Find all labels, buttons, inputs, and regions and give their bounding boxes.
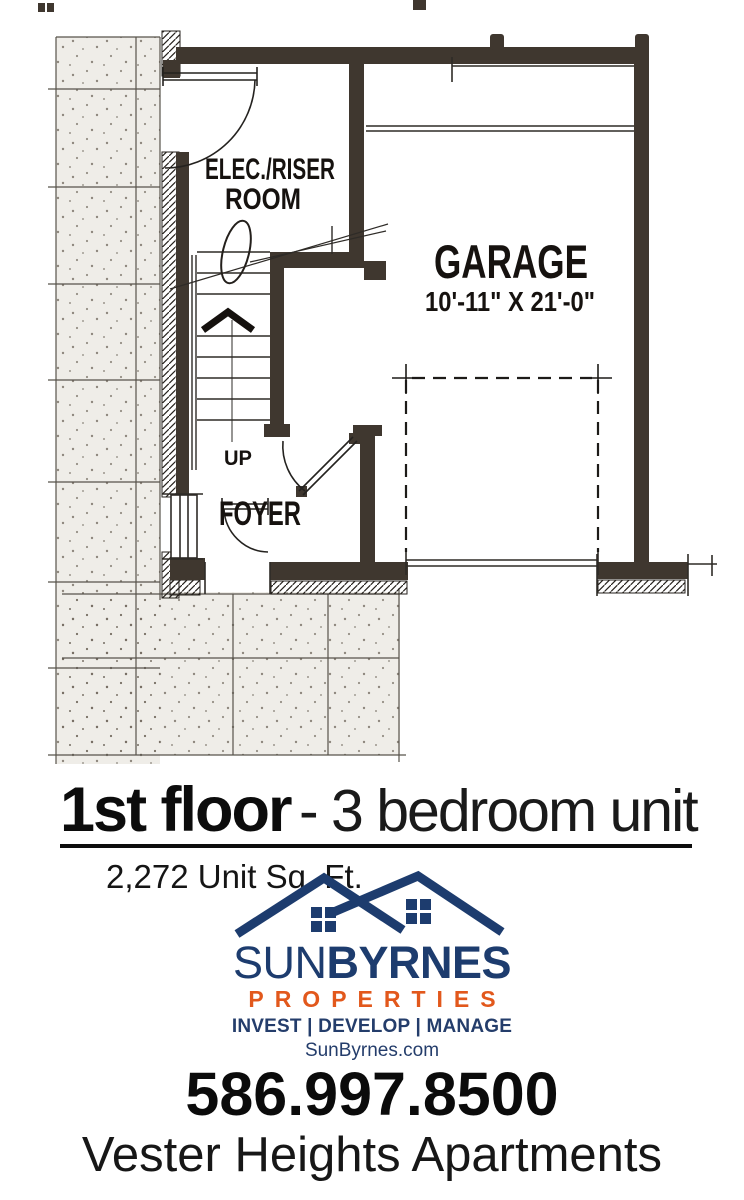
up-label: UP bbox=[224, 447, 252, 470]
flyer: ELEC./RISER ROOM GARAGE 10'-11" X 21'-0"… bbox=[0, 0, 744, 1200]
property-name: Vester Heights Apartments bbox=[0, 1131, 744, 1180]
elec-riser-label-line2: ROOM bbox=[225, 183, 301, 216]
foyer-label: FOYER bbox=[219, 495, 301, 533]
website-url: SunByrnes.com bbox=[0, 1041, 744, 1060]
garage-label: GARAGE bbox=[434, 235, 588, 288]
phone-number: 586.997.8500 bbox=[0, 1064, 744, 1125]
branding-block: SUNBYRNES PROPERTIES INVEST | DEVELOP | … bbox=[0, 870, 744, 1180]
plan-title: 1st floor - 3 bedroom unit bbox=[60, 779, 720, 842]
sunbyrnes-roofs-icon bbox=[233, 870, 511, 940]
title-underline bbox=[60, 844, 692, 848]
brand-tagline: INVEST | DEVELOP | MANAGE bbox=[0, 1017, 744, 1036]
roof-window-icon bbox=[311, 907, 336, 932]
unit-type: - 3 bedroom unit bbox=[299, 778, 697, 844]
garage-dimensions: 10'-11" X 21'-0" bbox=[425, 286, 595, 317]
floor-number: 1st floor bbox=[60, 775, 291, 845]
roof-window-icon bbox=[406, 899, 431, 924]
brand-byrnes: BYRNES bbox=[326, 937, 511, 988]
brand-properties: PROPERTIES bbox=[0, 988, 744, 1011]
elec-riser-label-line1: ELEC./RISER bbox=[205, 153, 335, 186]
brand-name: SUNBYRNES bbox=[0, 940, 744, 985]
brand-sun: SUN bbox=[233, 937, 327, 988]
up-arrow-icon bbox=[203, 312, 253, 330]
floor-plan-drawing: ELEC./RISER ROOM GARAGE 10'-11" X 21'-0"… bbox=[0, 0, 744, 775]
garage-door-dashed bbox=[392, 364, 612, 552]
